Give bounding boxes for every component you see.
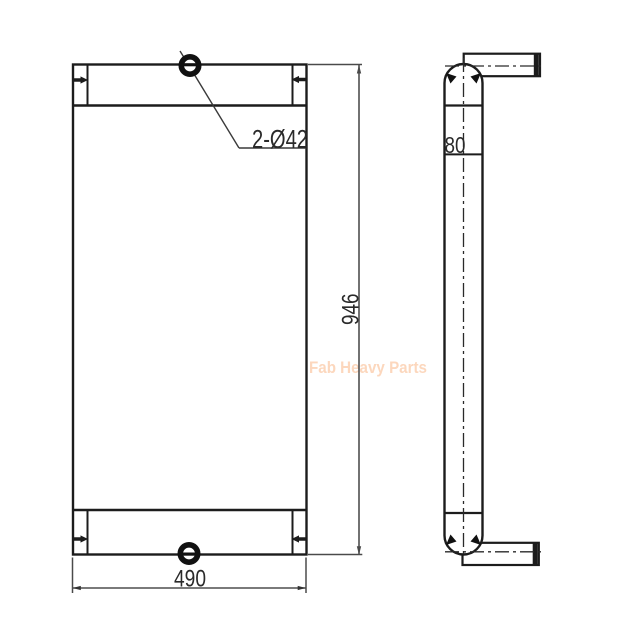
svg-text:490: 490 xyxy=(174,566,206,593)
svg-text:946: 946 xyxy=(338,294,365,326)
svg-text:2-Ø42: 2-Ø42 xyxy=(252,124,308,154)
svg-text:80: 80 xyxy=(445,132,466,158)
svg-text:Fab Heavy Parts: Fab Heavy Parts xyxy=(309,359,427,377)
